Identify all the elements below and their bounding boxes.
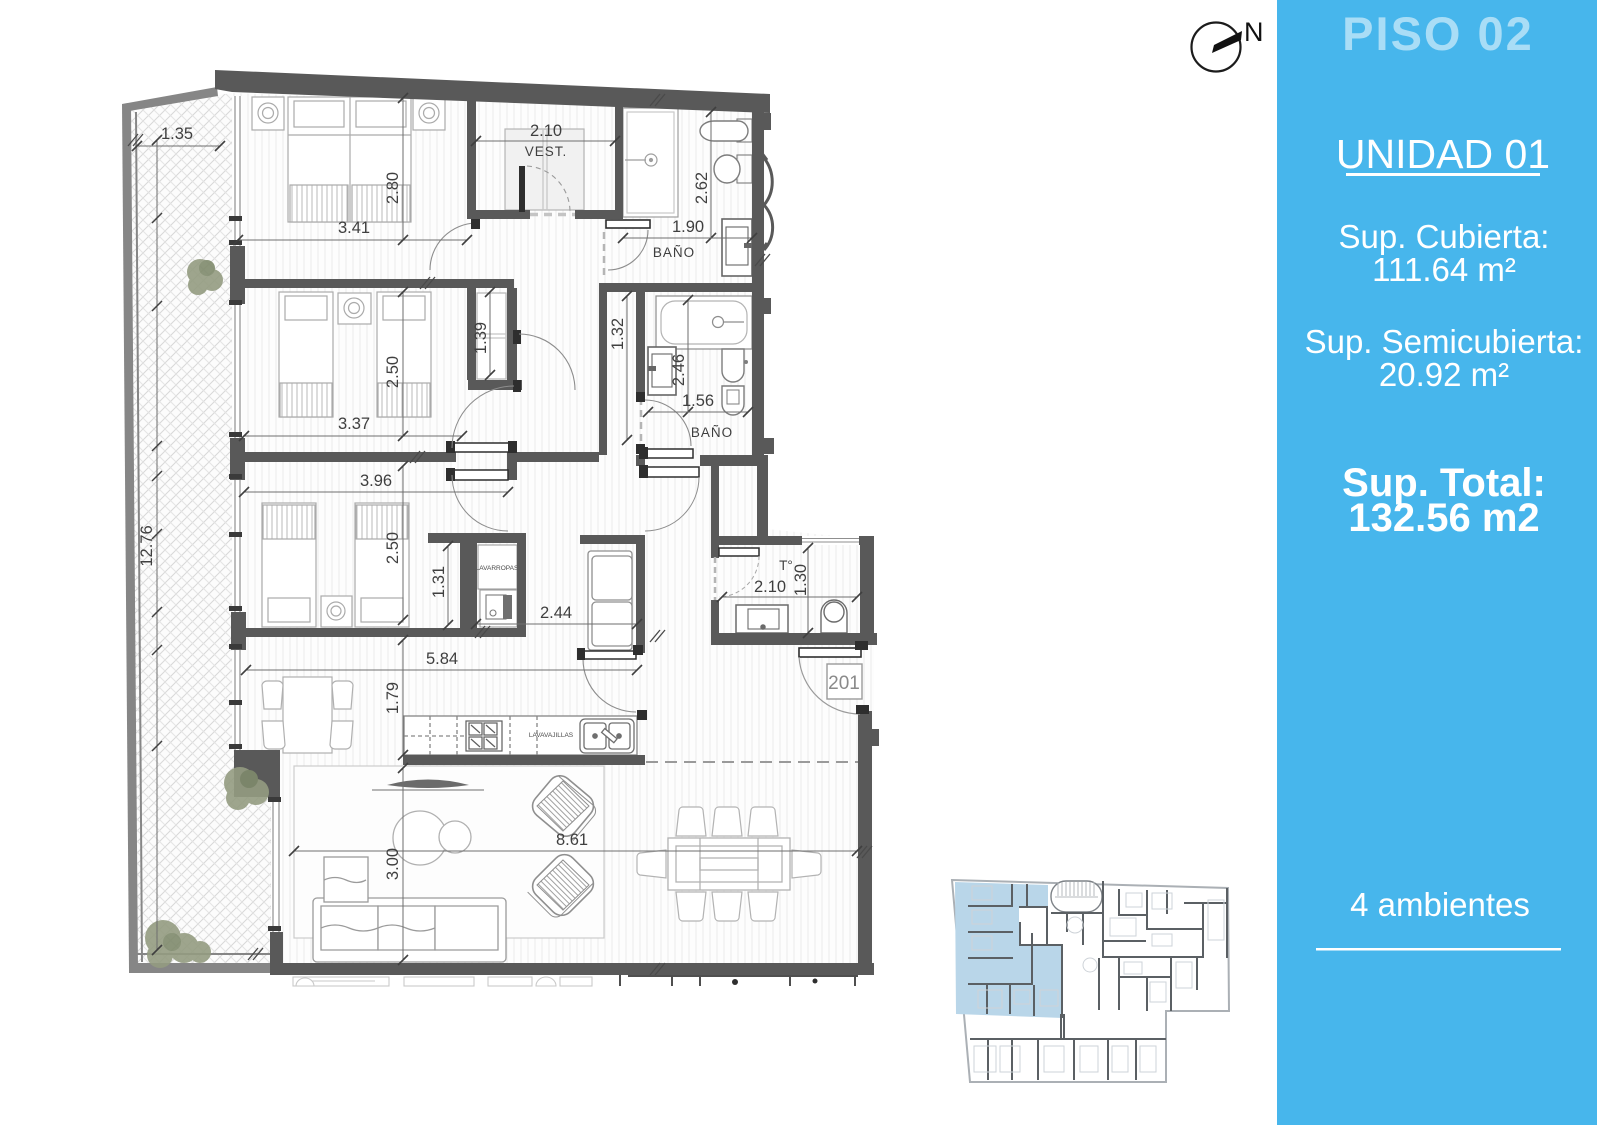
svg-text:1.90: 1.90: [672, 218, 704, 236]
svg-text:PISO 02: PISO 02: [1342, 7, 1534, 60]
svg-text:20.92 m²: 20.92 m²: [1379, 356, 1509, 393]
svg-text:1.32: 1.32: [609, 318, 627, 350]
svg-text:VEST.: VEST.: [525, 144, 568, 159]
svg-text:1.79: 1.79: [384, 682, 402, 714]
svg-text:T°: T°: [779, 558, 793, 573]
svg-text:1.39: 1.39: [472, 322, 490, 354]
svg-text:2.10: 2.10: [754, 578, 786, 596]
svg-text:UNIDAD 01: UNIDAD 01: [1336, 131, 1550, 177]
svg-text:3.41: 3.41: [338, 219, 370, 237]
svg-text:4 ambientes: 4 ambientes: [1350, 886, 1530, 923]
svg-text:201: 201: [828, 673, 860, 694]
svg-text:2.80: 2.80: [384, 172, 402, 204]
svg-text:LAVARROPAS: LAVARROPAS: [476, 565, 519, 572]
svg-text:1.35: 1.35: [161, 125, 193, 143]
svg-text:3.37: 3.37: [338, 415, 370, 433]
svg-text:12.76: 12.76: [138, 525, 156, 566]
svg-text:132.56 m2: 132.56 m2: [1348, 496, 1539, 540]
svg-text:2.44: 2.44: [540, 604, 572, 622]
svg-text:111.64 m²: 111.64 m²: [1372, 251, 1516, 288]
svg-text:BAÑO: BAÑO: [691, 425, 733, 440]
svg-text:2.46: 2.46: [670, 354, 688, 386]
svg-text:2.10: 2.10: [530, 122, 562, 140]
svg-text:LAVAVAJILLAS: LAVAVAJILLAS: [529, 732, 574, 739]
svg-text:8.61: 8.61: [556, 831, 588, 849]
svg-text:1.30: 1.30: [792, 564, 810, 596]
svg-text:3.00: 3.00: [384, 848, 402, 880]
svg-text:Sup. Semicubierta:: Sup. Semicubierta:: [1305, 323, 1584, 360]
svg-text:2.50: 2.50: [384, 356, 402, 388]
svg-text:1.56: 1.56: [682, 392, 714, 410]
svg-text:5.84: 5.84: [426, 650, 458, 668]
svg-text:2.50: 2.50: [384, 532, 402, 564]
svg-text:3.96: 3.96: [360, 472, 392, 490]
svg-text:Sup. Cubierta:: Sup. Cubierta:: [1339, 218, 1550, 255]
svg-text:1.31: 1.31: [430, 566, 448, 598]
svg-text:BAÑO: BAÑO: [653, 245, 695, 260]
svg-text:N: N: [1244, 17, 1264, 47]
svg-text:2.62: 2.62: [693, 172, 711, 204]
